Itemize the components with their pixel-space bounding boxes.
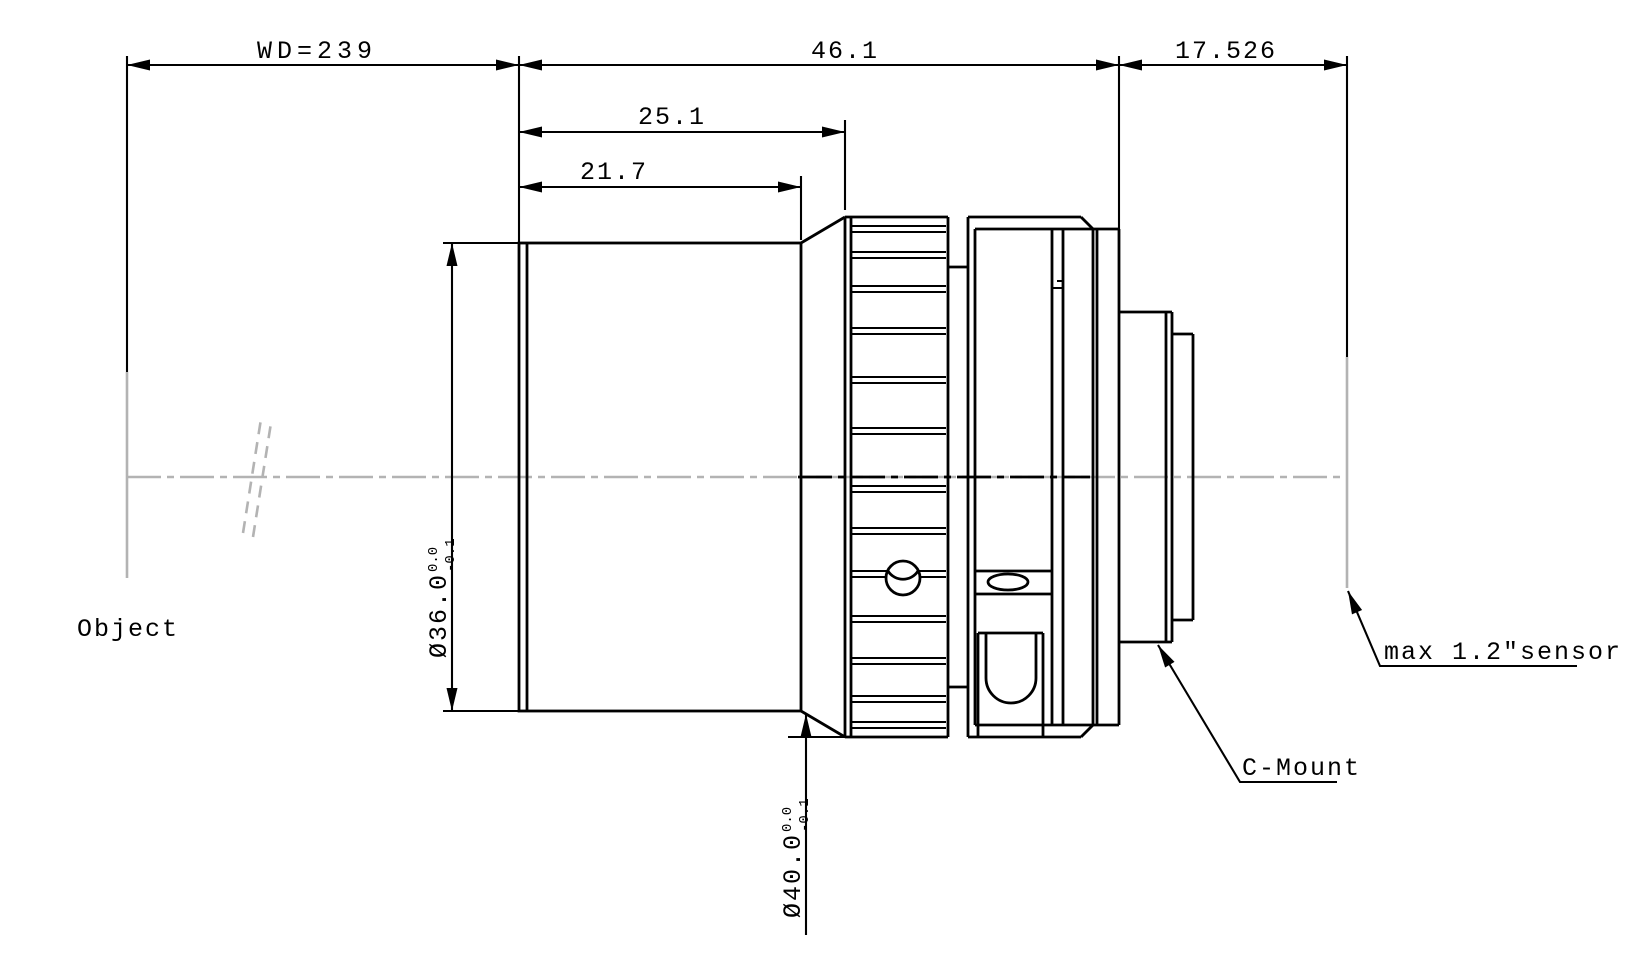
- screw-slot-oval: [988, 574, 1028, 590]
- rear-ring-top-rear-chamfer: [1081, 217, 1093, 229]
- break-symbol-line-2: [253, 423, 271, 537]
- annotation-layer: C-Mount max 1.2″sensor Object: [77, 591, 1622, 783]
- front-diameter-tol-lower: -0.1: [443, 538, 459, 572]
- lens-technical-drawing: WD=239 46.1 17.526 25.1 21.7 Ø36.0 0.0 -…: [0, 0, 1629, 956]
- ring-diameter-tol-lower: -0.1: [797, 798, 813, 832]
- front-diameter-tol-upper: 0.0: [426, 547, 442, 572]
- centerline-layer: [127, 357, 1347, 588]
- dim-text-flange-distance: 17.526: [1175, 37, 1277, 66]
- dim-text-barrel-length: 21.7: [580, 158, 648, 187]
- dim-text-body-length: 46.1: [811, 37, 879, 66]
- object-label: Object: [77, 615, 179, 644]
- sensor-label: max 1.2″sensor: [1384, 638, 1622, 667]
- drawing-canvas: WD=239 46.1 17.526 25.1 21.7 Ø36.0 0.0 -…: [0, 0, 1629, 956]
- dim-text-working-distance: WD=239: [257, 37, 377, 66]
- dim-label-ring-diameter: Ø40.0 0.0 -0.1: [779, 798, 813, 918]
- cmount-label: C-Mount: [1242, 754, 1361, 783]
- dim-text-front-length: 25.1: [638, 103, 706, 132]
- bottom-chamfer: [801, 711, 845, 737]
- top-chamfer: [801, 217, 845, 243]
- dim-text-ring-diameter: Ø40.0: [779, 833, 808, 918]
- dimension-layer: WD=239 46.1 17.526 25.1 21.7 Ø36.0 0.0 -…: [127, 37, 1347, 935]
- ring-diameter-tol-upper: 0.0: [780, 807, 796, 832]
- dim-label-front-diameter: Ø36.0 0.0 -0.1: [425, 538, 459, 658]
- dim-text-front-diameter: Ø36.0: [425, 573, 454, 658]
- thumbscrew-u-cutout: [986, 633, 1036, 703]
- rear-ring-bottom-rear-chamfer: [1081, 725, 1093, 737]
